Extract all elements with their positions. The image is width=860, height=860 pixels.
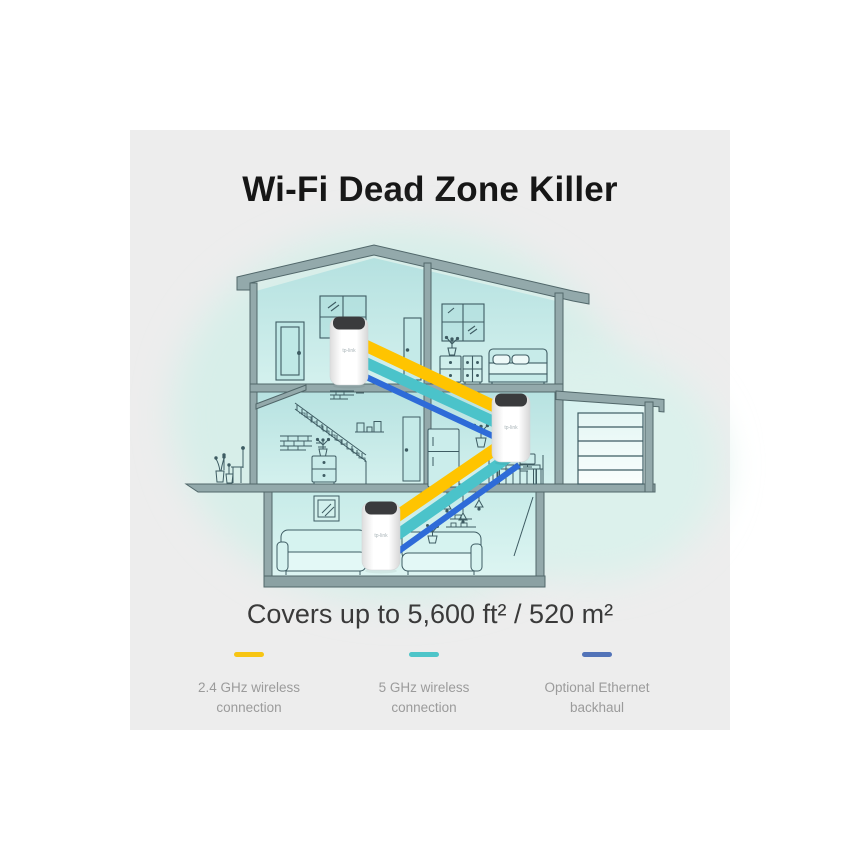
nightstand xyxy=(312,456,336,484)
legend-item-24ghz: 2.4 GHz wireless connection xyxy=(149,644,349,719)
legend-item-ethernet: Optional Ethernet backhaul xyxy=(497,644,697,719)
house-illustration: tp-link xyxy=(0,0,860,860)
picture-frame xyxy=(314,496,339,521)
bed xyxy=(489,349,547,384)
deco-unit-top-floor xyxy=(330,317,368,389)
legend-label: 2.4 GHz wireless connection xyxy=(149,678,349,719)
legend-dash-24ghz xyxy=(234,652,264,657)
legend-dash-5ghz xyxy=(409,652,439,657)
legend-label: Optional Ethernet backhaul xyxy=(497,678,697,719)
legend-dash-ethernet xyxy=(582,652,612,657)
sofa xyxy=(277,530,366,575)
coverage-text: Covers up to 5,600 ft² / 520 m² xyxy=(130,599,730,630)
door xyxy=(276,322,304,380)
deco-unit-basement xyxy=(362,502,400,574)
garage-door xyxy=(578,413,643,484)
product-image: Wi-Fi Dead Zone Killer xyxy=(0,0,860,860)
legend-item-5ghz: 5 GHz wireless connection xyxy=(324,644,524,719)
deco-unit-middle-floor xyxy=(492,394,530,466)
legend-label: 5 GHz wireless connection xyxy=(324,678,524,719)
